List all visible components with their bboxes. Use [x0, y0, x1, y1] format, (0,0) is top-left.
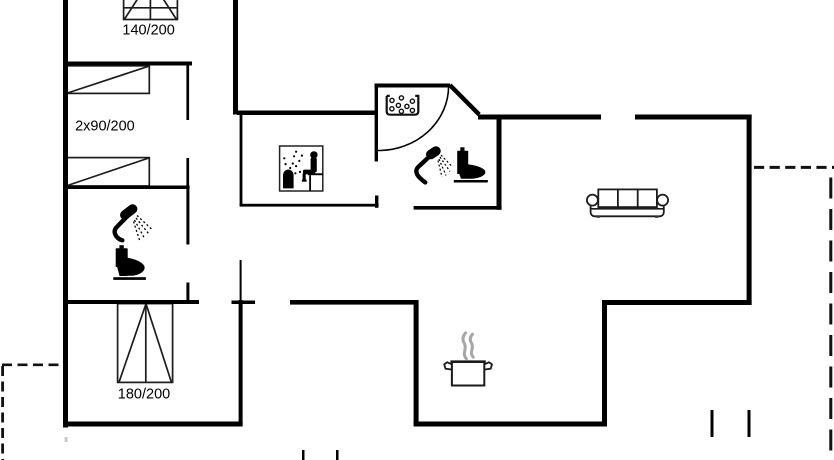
svg-text:140/200: 140/200	[122, 23, 174, 39]
svg-text:2x90/200: 2x90/200	[75, 118, 135, 134]
svg-text:180/200: 180/200	[118, 387, 170, 403]
